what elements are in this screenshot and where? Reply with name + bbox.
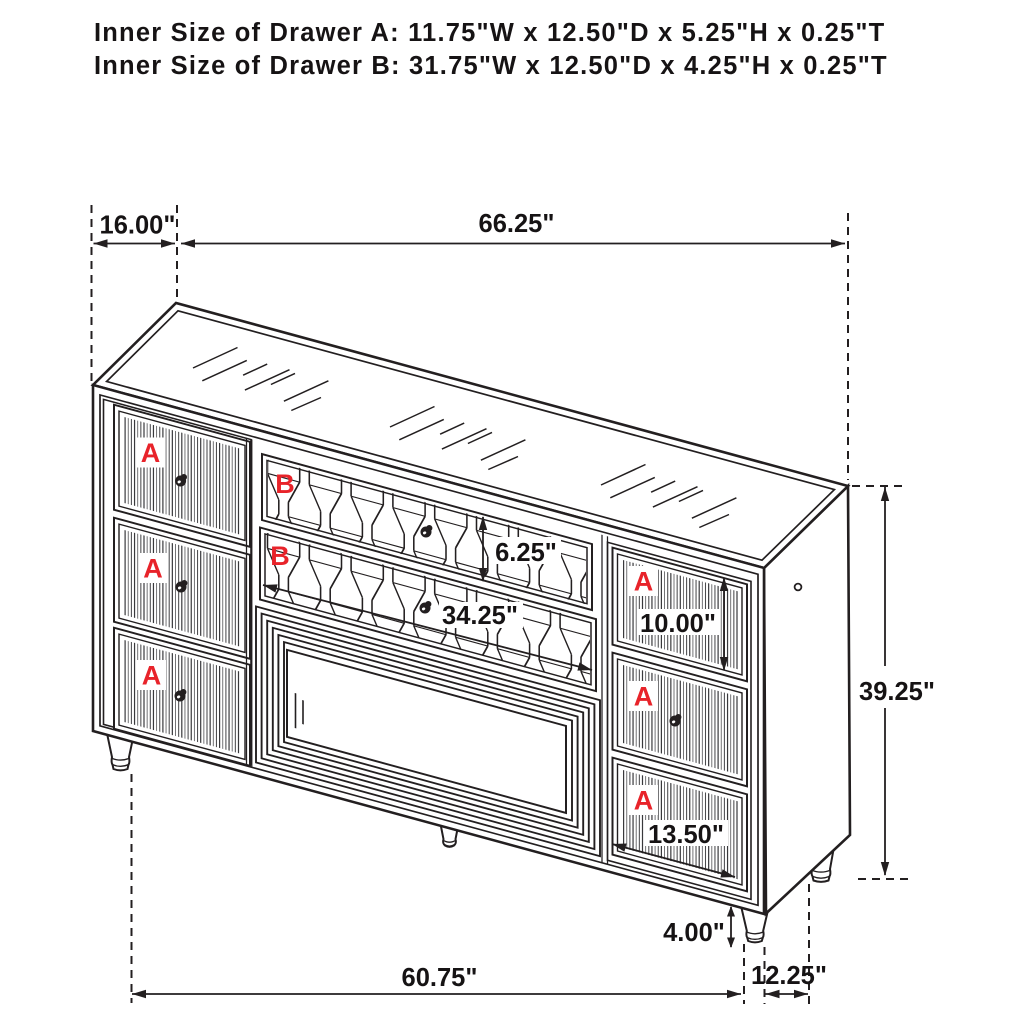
svg-text:Inner Size of Drawer A: 11.75": Inner Size of Drawer A: 11.75"W x 12.50"… [94, 19, 885, 47]
svg-text:A: A [143, 554, 163, 584]
svg-text:A: A [634, 567, 654, 597]
svg-text:B: B [275, 469, 295, 499]
svg-text:Inner Size of Drawer B: 31.75": Inner Size of Drawer B: 31.75"W x 12.50"… [94, 52, 888, 80]
svg-text:13.50": 13.50" [648, 821, 724, 849]
svg-text:10.00": 10.00" [640, 610, 716, 638]
svg-text:B: B [270, 541, 290, 571]
svg-text:6.25": 6.25" [495, 539, 557, 567]
svg-text:66.25": 66.25" [479, 210, 555, 238]
svg-text:60.75": 60.75" [402, 964, 478, 992]
svg-text:34.25": 34.25" [442, 602, 518, 630]
svg-text:A: A [634, 786, 654, 816]
svg-text:A: A [634, 682, 654, 712]
svg-text:A: A [141, 438, 161, 468]
svg-text:4.00": 4.00" [663, 919, 725, 947]
svg-text:12.25": 12.25" [751, 962, 827, 990]
svg-text:16.00": 16.00" [100, 212, 176, 240]
svg-text:39.25": 39.25" [859, 678, 935, 706]
svg-text:A: A [142, 661, 162, 691]
